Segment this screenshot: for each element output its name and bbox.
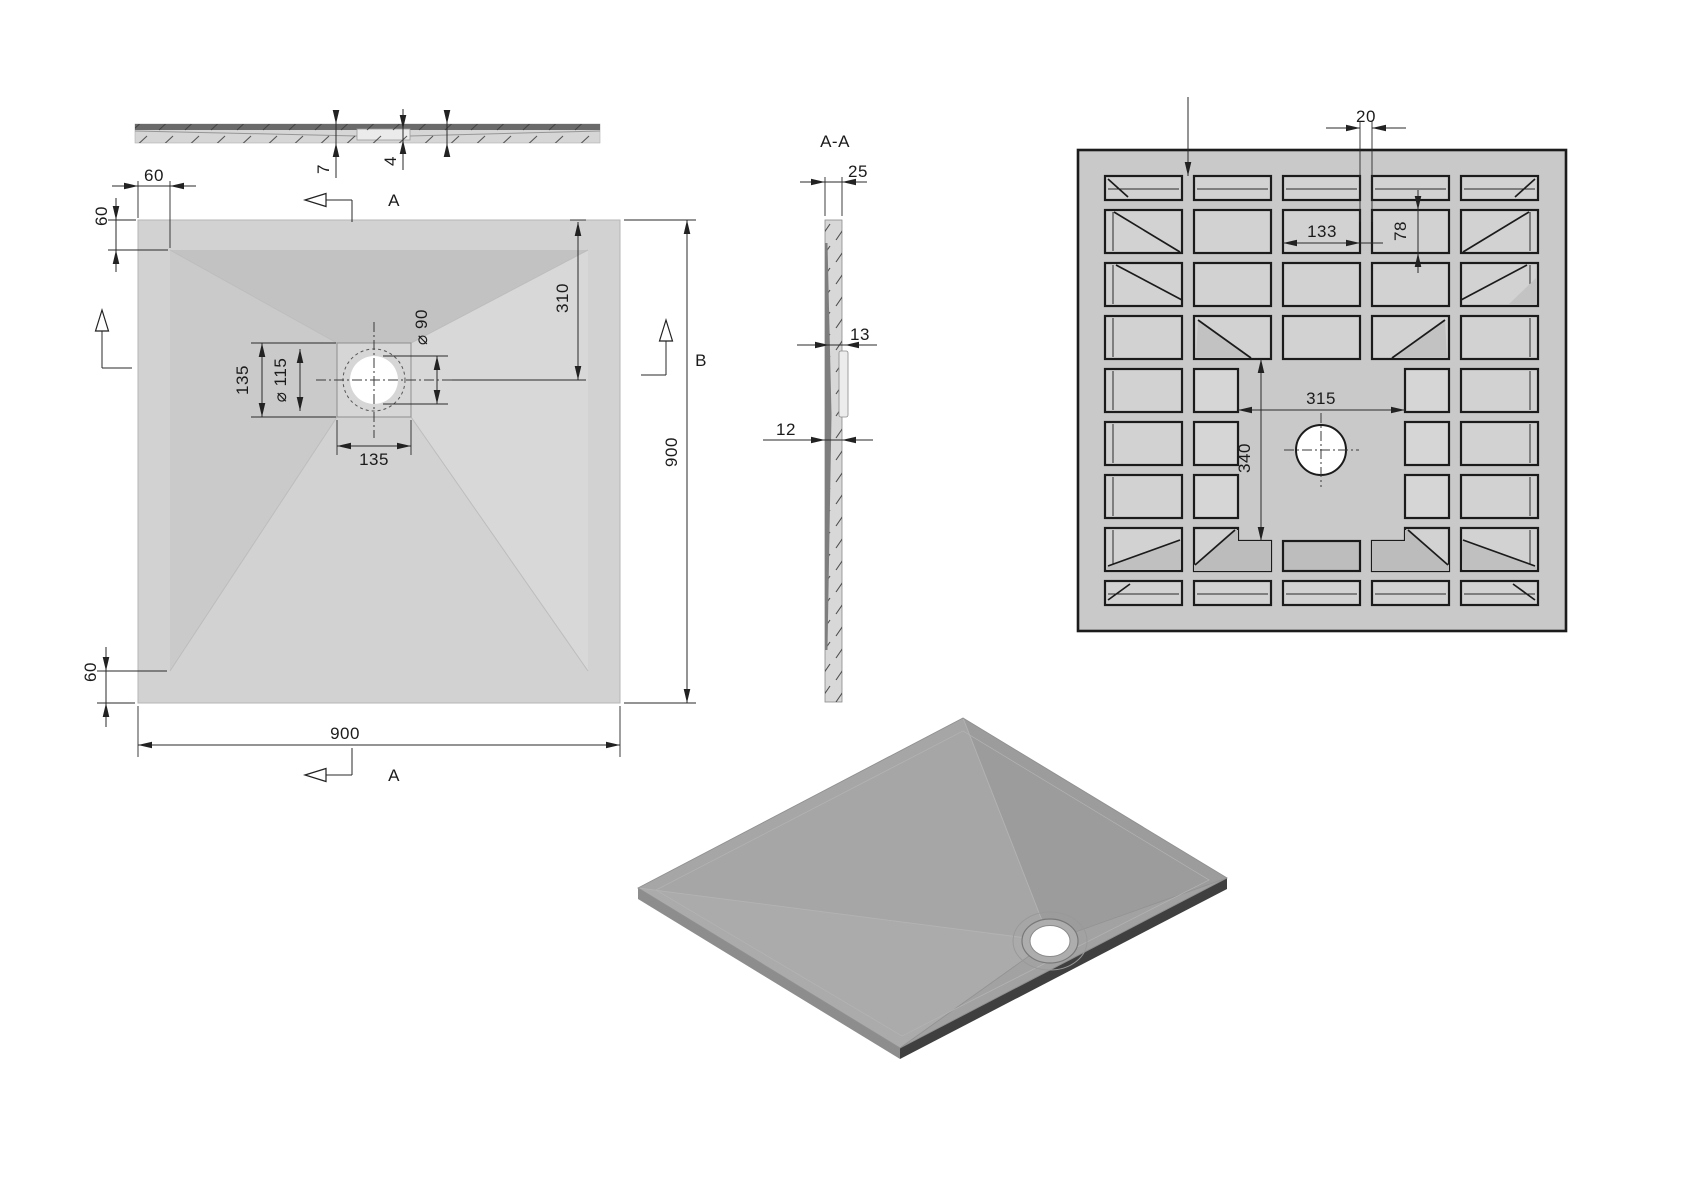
section-arrow-a-top: A [305,191,400,222]
pocket-strip [1461,176,1538,200]
technical-drawing-canvas: 7 4 60 [0,0,1697,1200]
section-label-a-top: A [388,191,400,210]
iso-drain-hole [1030,926,1070,957]
section-arrow-b-right: B [641,320,707,375]
pocket [1461,422,1538,465]
pocket [1461,369,1538,412]
pocket-small [1405,422,1449,465]
pocket-strip [1194,581,1271,605]
dim-label-rib: 20 [1356,107,1376,126]
plan-view: 60 60 60 135 ⌀ 115 ⌀ 90 135 [81,166,707,785]
pocket-strip [1105,176,1182,200]
dim-label-mid: 13 [850,325,870,344]
polygon-shape [660,320,673,341]
section-arrow-b-left [96,310,133,368]
pocket [1105,422,1182,465]
dim-label-drainbox-v: 135 [233,365,252,395]
pocket [1194,210,1271,253]
polygon-shape [96,310,109,331]
pocket [1105,369,1182,412]
dim-label-height: 900 [662,437,681,467]
section-label-a-bottom: A [388,766,400,785]
dim-label-offset-bottom: 60 [81,662,100,682]
dim-label-recess-dia: ⌀ 115 [271,358,290,403]
section-label-b: B [695,351,707,370]
pocket [1372,263,1449,306]
section-drain-boss [839,351,848,417]
pocket [1283,263,1360,306]
pocket [1194,263,1271,306]
section-aa-view: A-A 25 13 12 [763,132,877,702]
dim-label-offset-left: 60 [92,206,111,226]
pocket-strip [1372,176,1449,200]
bottom-ribbed-view: 20 133 78 315 340 [1078,97,1566,631]
pocket [1105,316,1182,359]
dim-label-drain-from-top: 310 [553,283,572,313]
pocket-small [1194,369,1238,412]
dim-label-thickness: 25 [848,162,868,181]
pocket-strip [1283,176,1360,200]
pocket-small [1405,475,1449,518]
pocket [1283,316,1360,359]
dim-label-front-4: 4 [381,156,400,166]
dim-label-drainbox-h: 135 [359,450,389,469]
pocket-strip [1194,176,1271,200]
dim-label-pocket-w: 133 [1307,222,1337,241]
pocket-small [1194,422,1238,465]
technical-drawing-page: 7 4 60 [0,0,1697,1200]
section-arrow-a-bottom: A [305,748,400,785]
pocket-small [1194,475,1238,518]
dim-label-hole-dia: ⌀ 90 [412,309,431,345]
pocket [1461,316,1538,359]
dim-label-pocket-h: 78 [1391,221,1410,241]
pocket-strip [1283,581,1360,605]
front-strip-hatch [135,124,600,143]
dim-label-front-7: 7 [314,164,333,174]
pocket [1105,475,1182,518]
dim-label-base: 12 [776,420,796,439]
dim-label-width: 900 [330,724,360,743]
dim-label-center-w: 315 [1306,389,1336,408]
section-aa-title: A-A [820,132,850,151]
polygon-shape [305,194,326,207]
pocket [1461,475,1538,518]
dim-label-offset-top: 60 [144,166,164,185]
front-elevation-view: 7 4 [135,109,600,178]
polygon-shape [305,769,326,782]
dim-label-center-h: 340 [1235,443,1254,473]
pocket-small [1405,369,1449,412]
pocket-strip [1372,581,1449,605]
isometric-view [638,718,1227,1059]
pocket [1372,210,1449,253]
pocket-notched-center [1283,541,1360,571]
pocket [1105,263,1182,306]
